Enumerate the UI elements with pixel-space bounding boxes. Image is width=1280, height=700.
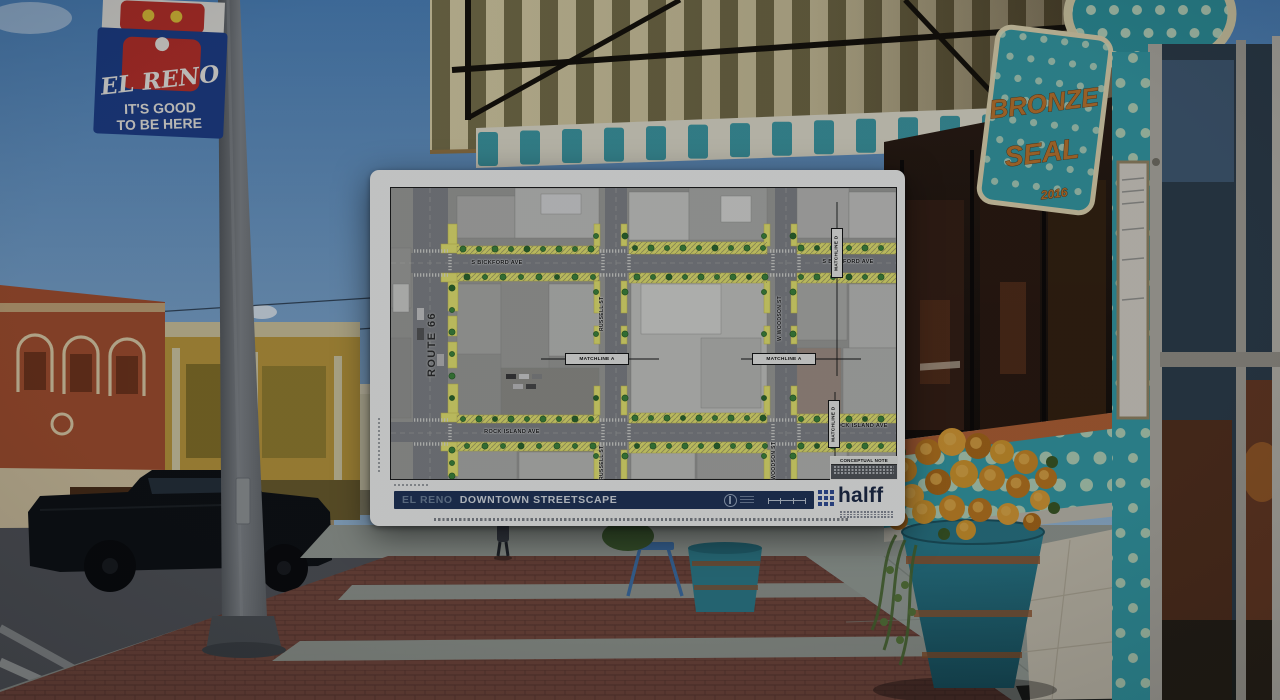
plan-title-city: EL RENO	[402, 494, 453, 506]
label-matchline-d-north: MATCHLINE D	[831, 228, 843, 278]
banner-tagline-2: TO BE HERE	[116, 115, 202, 133]
sheet-margin-microtext	[378, 418, 380, 472]
glass-door	[1148, 36, 1280, 700]
halff-logo: halff	[818, 485, 902, 519]
label-matchline-a-east: MATCHLINE A	[752, 353, 816, 365]
plan-title-bar: EL RENO DOWNTOWN STREETSCAPE	[394, 491, 814, 509]
streetscape-plan-sheet: ROUTE 66 S BICKFORD AVE S BICKFORD AVE R…	[370, 170, 905, 526]
north-arrow-icon	[724, 494, 737, 507]
label-rock-island-ave-west: ROCK ISLAND AVE	[470, 429, 554, 435]
label-matchline-a-west: MATCHLINE A	[565, 353, 629, 365]
label-route-66: ROUTE 66	[426, 302, 438, 388]
post-plate	[236, 478, 250, 524]
conceptual-note-title: CONCEPTUAL NOTE	[831, 457, 897, 465]
aerial-map	[391, 188, 896, 479]
plan-title-project: DOWNTOWN STREETSCAPE	[460, 494, 618, 506]
el-reno-banner: EL RENO IT'S GOOD TO BE HERE	[93, 0, 229, 139]
north-arrow-caption	[740, 496, 754, 504]
aerial-map-frame	[390, 187, 897, 480]
halff-grid-icon	[818, 490, 834, 506]
bronze-seal-sign: BRONZE SEAL 2016	[975, 25, 1113, 214]
sky-reflection	[1162, 60, 1234, 182]
distant-planter	[688, 548, 762, 612]
conceptual-note-box: CONCEPTUAL NOTE	[830, 456, 898, 480]
label-russell-st-south: RUSSELL ST	[599, 438, 605, 488]
framed-poster	[1118, 162, 1148, 418]
conceptual-note-text-line	[834, 472, 894, 474]
halff-address-microtext	[840, 510, 894, 518]
screenshot-stage: BRONZE SEAL 2016	[0, 0, 1280, 700]
label-russell-st-north: RUSSELL ST	[599, 288, 605, 340]
halff-logo-text: halff	[838, 485, 883, 507]
door-rail	[1160, 352, 1280, 367]
conceptual-note-text-line	[834, 469, 894, 471]
conceptual-note-text-line	[834, 466, 894, 468]
door-frame	[1236, 40, 1246, 700]
label-woodson-st-south: WOODSON ST	[771, 436, 777, 486]
door-handle	[1152, 158, 1160, 166]
door-frame	[1148, 44, 1162, 700]
sheet-disclaimer-microtext	[434, 518, 848, 521]
scale-bar-icon	[768, 496, 806, 504]
banner-tagline-1: IT'S GOOD	[124, 99, 196, 117]
sheet-number-microtext	[394, 484, 428, 486]
label-matchline-d-south: MATCHLINE D	[828, 400, 840, 448]
label-w-woodson-st-north: W WOODSON ST	[777, 286, 783, 350]
label-s-bickford-ave-west: S BICKFORD AVE	[455, 260, 539, 266]
label-s-bickford-ave-east: S BICKFORD AVE	[806, 259, 890, 265]
door-frame	[1272, 36, 1280, 700]
